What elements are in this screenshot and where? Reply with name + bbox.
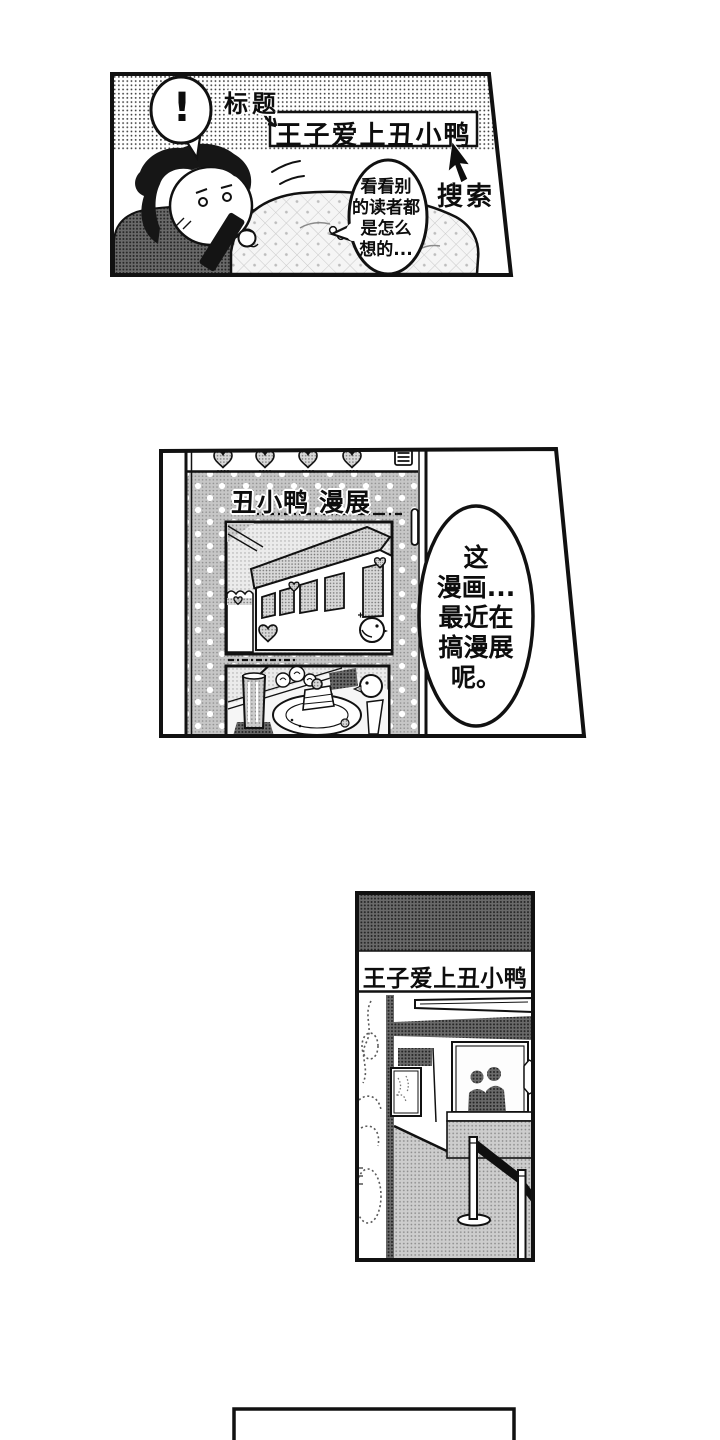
photo-booth: [226, 522, 392, 654]
photo-cafe: [226, 662, 389, 738]
bubble-line: 搞漫展: [420, 633, 532, 663]
scrollbar-thumb: [412, 509, 419, 545]
exhibition-banner-text: 王子爱上丑小鸭: [358, 959, 532, 993]
panel-4-border: [234, 1409, 514, 1440]
bubble-line: 这: [420, 543, 532, 573]
bubble-line: 漫画...: [420, 573, 532, 603]
phone-screen-title: 丑小鸭 漫展: [225, 483, 377, 519]
wall-edge-bar: [386, 995, 394, 1260]
bubble-line: 是怎么: [346, 219, 426, 240]
search-label: 搜索: [434, 176, 498, 213]
comic-page: ! 标题 王子爱上丑小鸭 搜索 看看别 的读者都 是怎么 想的... 丑小鸭 漫…: [0, 0, 720, 1440]
bubble-line: 最近在: [420, 603, 532, 633]
search-box-text: 王子爱上丑小鸭: [271, 115, 476, 152]
speech-bubble-2-text: 这 漫画... 最近在 搞漫展 呢。: [420, 543, 532, 693]
title-label: 标题: [219, 84, 285, 119]
doorway: [452, 1042, 528, 1112]
bubble-line: 呢。: [420, 663, 532, 693]
wall-poster: [391, 1068, 421, 1116]
speech-bubble-1-text: 看看别 的读者都 是怎么 想的...: [346, 177, 426, 261]
exclamation-text: !: [167, 85, 197, 131]
bubble-line: 的读者都: [346, 198, 426, 219]
bubble-line: 想的...: [346, 240, 426, 261]
ceiling: [357, 893, 533, 951]
wall-sign: [398, 1048, 432, 1066]
panel-3: [355, 893, 533, 1260]
bubble-line: 看看别: [346, 177, 426, 198]
